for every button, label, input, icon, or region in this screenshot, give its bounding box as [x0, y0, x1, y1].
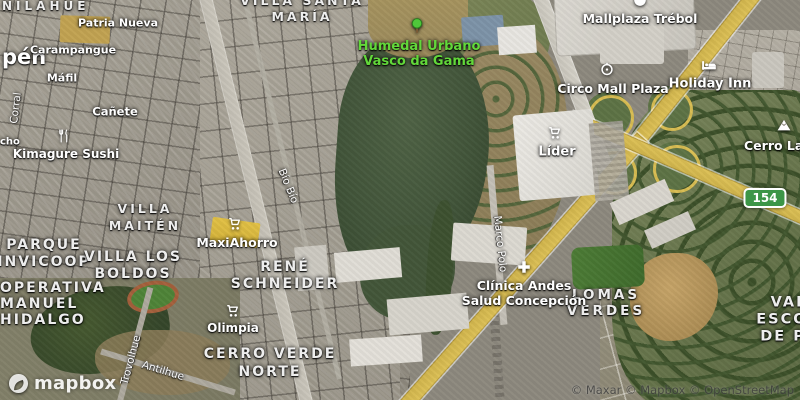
villa-maiten-label: VILLAMAITÉN — [109, 200, 181, 234]
mapbox-logo-icon — [8, 373, 29, 394]
label-line: VILLA SANTA — [240, 0, 364, 9]
route-154-shield: 154 — [743, 188, 786, 208]
nilahue-label: NILAHUE — [2, 0, 89, 14]
grocery-cart-icon-maxiahorro[interactable] — [228, 217, 243, 236]
mallplaza-trebol-label[interactable]: Mallplaza Trébol — [583, 12, 698, 26]
olimpia-label[interactable]: Olimpia — [207, 322, 259, 336]
label-line: RENÉ — [231, 259, 340, 276]
label-line: NORTE — [204, 363, 337, 381]
hospital-cross-icon[interactable] — [517, 260, 532, 279]
label-line: Olimpia — [207, 322, 259, 336]
maxiahorro-label[interactable]: MaxiAhorro — [196, 236, 277, 250]
label-line: MARÍA — [240, 9, 364, 25]
label-line: Clínica Andes — [462, 278, 587, 293]
valle-escondido-label: VALESCONDE PA — [756, 295, 800, 346]
label-line: PARQUE — [0, 237, 91, 254]
villa-los-boldos-label: VILLA LOSBOLDOS — [84, 249, 182, 283]
label-line: VILLA LOS — [84, 249, 182, 266]
mall-poi-icon — [634, 0, 647, 11]
circo-mall-plaza-label[interactable]: Circo Mall Plaza — [557, 82, 668, 96]
restaurant-icon[interactable] — [57, 129, 71, 148]
label-line: MaxiAhorro — [196, 236, 277, 250]
label-line: VAL — [756, 295, 800, 312]
cho-fragment-label: cho — [0, 136, 20, 148]
carampangue-label: Carampangue — [30, 45, 116, 58]
label-line: SCHNEIDER — [231, 276, 340, 293]
grocery-cart-icon-lider[interactable] — [548, 126, 563, 145]
label-line: MAITÉN — [109, 217, 181, 234]
grocery-cart-icon-olimpia[interactable] — [226, 304, 241, 323]
map-attribution[interactable]: © Maxar © Mapbox © OpenStreetMap — [571, 383, 794, 397]
lider-label[interactable]: Líder — [538, 146, 575, 161]
lodging-icon[interactable] — [701, 58, 717, 77]
label-line: VILLA — [109, 200, 181, 217]
mapbox-logo[interactable]: mapbox — [8, 373, 116, 394]
attraction-icon[interactable] — [600, 62, 615, 81]
label-line: Líder — [538, 146, 575, 161]
label-line: Holiday Inn — [669, 78, 752, 93]
patria-nueva-label: Patria Nueva — [78, 18, 158, 31]
cerro-verde-norte-label: CERRO VERDENORTE — [204, 345, 337, 381]
mapbox-logo-text: mapbox — [34, 373, 116, 394]
label-line: Kimagure Sushi — [13, 148, 119, 162]
humedal-vasco-da-gama-label: Humedal UrbanoVasco da Gama — [358, 39, 481, 69]
label-line: DE PA — [756, 329, 800, 346]
label-line: OPERATIVA — [0, 280, 106, 296]
label-line: Salud Concepción — [462, 293, 587, 308]
label-line: Mallplaza Trébol — [583, 12, 698, 26]
map-canvas[interactable]: 154 mapbox © Maxar © Mapbox © OpenStreet… — [0, 0, 800, 400]
clinica-andes-label[interactable]: Clínica AndesSalud Concepción — [462, 278, 587, 308]
label-line: Circo Mall Plaza — [557, 82, 668, 96]
label-line: Cañete — [92, 105, 137, 118]
mafil-label: Máfil — [47, 73, 77, 86]
label-line: Vasco da Gama — [358, 54, 481, 69]
kimagure-sushi-label[interactable]: Kimagure Sushi — [13, 148, 119, 162]
label-line: Humedal Urbano — [358, 39, 481, 54]
rene-schneider-label: RENÉSCHNEIDER — [231, 259, 340, 293]
label-line: INVICOOP — [0, 254, 91, 271]
label-line: HIDALGO — [0, 312, 106, 328]
label-line: ESCON — [756, 312, 800, 329]
label-line: Patria Nueva — [78, 18, 158, 31]
label-line: MANUEL — [0, 296, 106, 312]
cooperativa-manuel-hidalgo-label: OPERATIVAMANUELHIDALGO — [0, 280, 106, 328]
parque-invicoop-label: PARQUEINVICOOP — [0, 237, 91, 271]
route-154-number: 154 — [752, 191, 777, 205]
canete-label: Cañete — [92, 105, 137, 118]
label-line: cho — [0, 136, 20, 148]
label-line: Cerro Las M — [744, 139, 800, 153]
label-line: Máfil — [47, 73, 77, 86]
label-line: Carampangue — [30, 45, 116, 58]
cerro-las-label: Cerro Las M — [744, 139, 800, 153]
villa-santa-maria-label: VILLA SANTAMARÍA — [240, 0, 364, 25]
mountain-icon — [777, 117, 792, 136]
tree-icon — [409, 18, 425, 39]
holiday-inn-label[interactable]: Holiday Inn — [669, 78, 752, 93]
label-line: CERRO VERDE — [204, 345, 337, 363]
label-line: NILAHUE — [2, 0, 89, 14]
